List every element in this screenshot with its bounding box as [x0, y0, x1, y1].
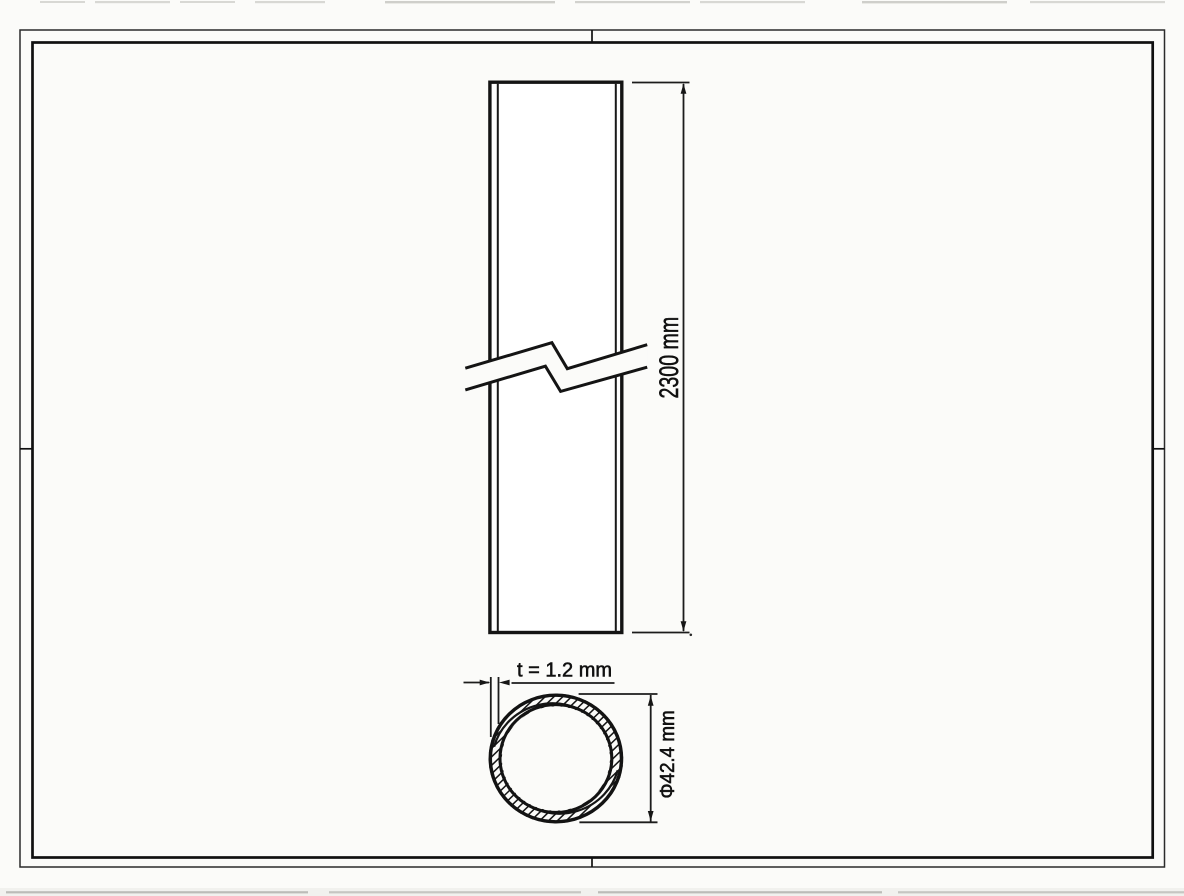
svg-text:2300 mm: 2300 mm	[654, 317, 684, 399]
svg-text:t = 1.2 mm: t = 1.2 mm	[517, 660, 612, 682]
svg-text:Φ42.4 mm: Φ42.4 mm	[656, 710, 679, 798]
